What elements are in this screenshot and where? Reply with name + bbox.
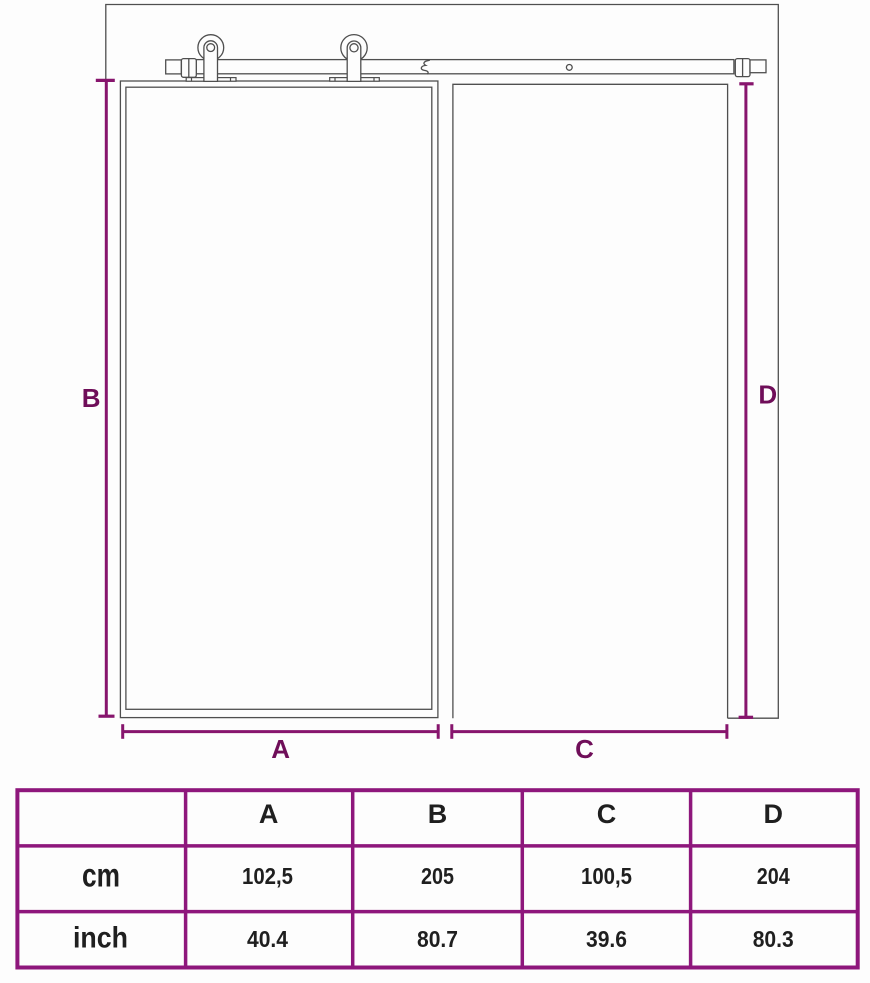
svg-text:C: C [597, 799, 617, 829]
svg-text:B: B [428, 799, 448, 829]
svg-text:80.7: 80.7 [417, 926, 458, 952]
svg-text:100,5: 100,5 [581, 863, 632, 889]
svg-text:C: C [575, 734, 594, 764]
svg-text:inch: inch [73, 922, 128, 955]
svg-text:80.3: 80.3 [753, 926, 794, 952]
svg-text:D: D [763, 799, 783, 829]
svg-text:D: D [758, 380, 777, 410]
svg-text:cm: cm [82, 857, 120, 894]
svg-text:205: 205 [421, 863, 454, 889]
svg-text:204: 204 [757, 863, 790, 889]
svg-text:A: A [259, 799, 279, 829]
svg-text:102,5: 102,5 [242, 863, 293, 889]
svg-text:39.6: 39.6 [586, 926, 627, 952]
svg-text:B: B [82, 383, 101, 413]
svg-text:40.4: 40.4 [247, 926, 288, 952]
svg-text:A: A [271, 734, 290, 764]
